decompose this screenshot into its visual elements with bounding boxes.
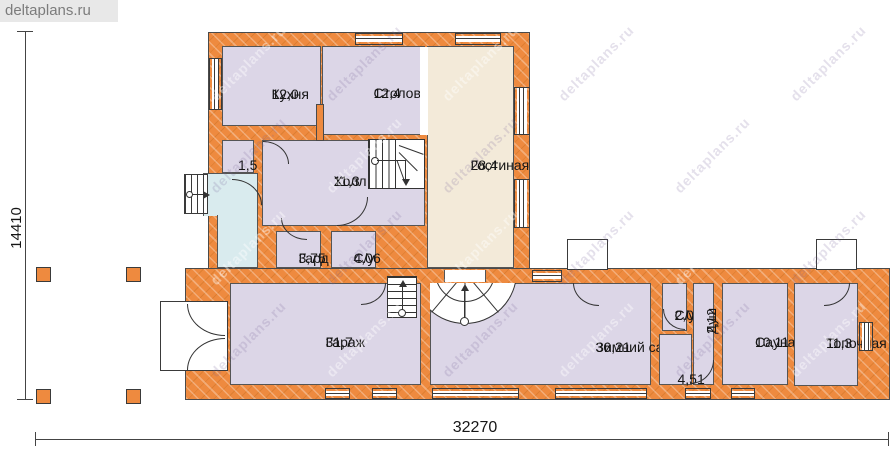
stair-start-marker [371,157,379,165]
gate-leaf [187,304,225,336]
chimney-block [816,239,857,270]
window [555,388,647,399]
floor-plan: deltaplans.ru 14410 32270 Кухня12,0 Стол… [0,0,895,449]
window [514,179,530,228]
window [532,270,562,282]
dimension-value-width: 32270 [400,419,550,437]
staircase-garage [387,276,417,318]
carport-pillar [126,267,141,282]
room-sauna: Сауна10,11 [722,283,788,385]
watermark-text: deltaplans.ru [671,22,753,104]
watermark-text: deltaplans.ru [787,22,869,104]
staircase-round [430,283,522,331]
dimension-tick [17,399,33,400]
carport-pillar [126,389,141,404]
dimension-value-height: 14410 [8,198,24,258]
watermark-text: deltaplans.ru [555,114,637,196]
wall-stub [316,104,324,141]
site-brand-label: deltaplans.ru [0,0,118,22]
stair-direction-arrow [461,284,469,291]
watermark-text: deltaplans.ru [555,22,637,104]
stair-direction-arrow [203,191,210,199]
wall-opening [420,47,428,135]
stair-winder [399,152,418,171]
stair-direction-arrow [399,280,407,287]
room-kitchen: Кухня12,0 [222,46,321,126]
room-dining: Столовая12,4 [322,46,425,135]
window [355,33,403,45]
stair-direction-line [405,160,406,180]
window [372,388,397,399]
watermark-text: deltaplans.ru [787,114,869,196]
stair-start-marker [398,309,406,317]
stair-direction-line [377,160,405,161]
stair-direction-line [402,283,403,311]
window [685,388,711,399]
gate-leaf [187,338,225,370]
wall-opening [444,270,486,282]
window [859,322,873,351]
room-corridor: 4,51 [659,334,692,385]
window [731,388,755,399]
garage-gate [160,301,228,371]
stair-direction-line [464,288,465,319]
entry-steps [184,174,208,214]
watermark-text: deltaplans.ru [671,114,753,196]
window [514,87,530,135]
dimension-tick [35,432,36,446]
staircase-hall [368,139,425,189]
dimension-tick [888,432,889,446]
stair-direction-arrow [402,179,410,186]
chimney-block [567,239,608,270]
window [455,33,501,45]
dimension-tick [17,31,33,32]
stair-winder [399,145,424,155]
room-living: Гостиная28,4 [427,46,514,268]
carport-pillar [36,267,51,282]
window [209,58,222,110]
stair-start-marker [460,317,469,326]
dimension-line-left [25,31,26,400]
carport-pillar [36,389,51,404]
window [432,388,519,399]
dimension-line-bottom [35,439,889,440]
room-closet: 1,5 [222,140,254,173]
porch [217,215,258,268]
window [325,388,350,399]
room-wc-1: С/у4,06 [331,231,376,268]
